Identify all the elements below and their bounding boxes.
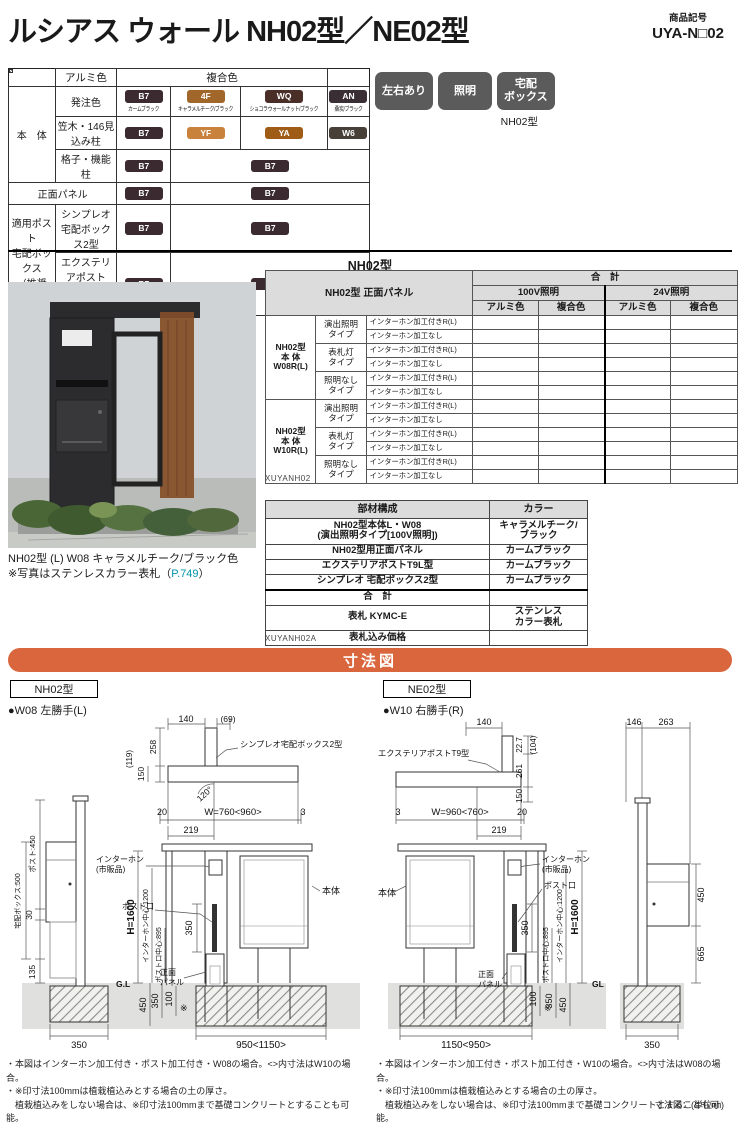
- table-row: 照明なし タイプインターホン加工付きR(L): [266, 456, 738, 470]
- part-name: 合 計: [266, 590, 490, 605]
- part-callout: ポスト口: [544, 881, 576, 890]
- price-cell: [538, 456, 604, 470]
- price-cell: [473, 400, 538, 414]
- dim-label: 350: [644, 1040, 660, 1051]
- price-cell: [605, 386, 670, 400]
- color-cell: B7: [117, 117, 171, 150]
- dim-label: G.L: [116, 979, 130, 989]
- type-label: 照明なし タイプ: [316, 456, 366, 484]
- price-cell: [538, 358, 604, 372]
- price-cell: [473, 470, 538, 484]
- color-chip: B7: [125, 127, 163, 139]
- part-name: NH02型用正面パネル: [266, 544, 490, 559]
- row-label: 格子・機能柱: [55, 150, 117, 183]
- dim-label: ※: [180, 1003, 188, 1013]
- price-cell: [605, 428, 670, 442]
- part-callout: シンプレオ宅配ボックス2型: [240, 739, 342, 749]
- dim-label: インターホン中心:1200: [141, 889, 150, 963]
- part-callout: パネル: [160, 978, 184, 987]
- table-code: XUYANH02A: [265, 634, 316, 643]
- part-callout: インターホン: [542, 855, 590, 864]
- price-cell: [670, 372, 737, 386]
- dim-label: 100: [528, 991, 538, 1006]
- model-label-ne02: NE02型: [383, 680, 471, 698]
- dim-label: 950<1150>: [236, 1040, 286, 1051]
- note-line: ・※印寸法100mmは植栽植込みとする場合の土の厚さ。: [376, 1085, 736, 1099]
- dim-label: W=760<960>: [204, 807, 262, 818]
- color-chip: B7: [125, 160, 163, 172]
- total-header: 合 計: [473, 271, 738, 286]
- part-callout: 本体: [322, 885, 340, 896]
- part-callout: パネル: [478, 980, 502, 989]
- color-cell: B7: [171, 183, 370, 205]
- color-name: 桑炭/ブラック: [332, 104, 364, 113]
- dimension-drawing-ne02: 140 エクステリアポストT9型 22.7 (104) 261 150 3 W=…: [374, 714, 740, 1056]
- dim-label: GL: [592, 979, 604, 989]
- price-cell: [605, 358, 670, 372]
- sub-label: インターホン加工なし: [366, 470, 473, 484]
- dim-label: 22.7: [515, 737, 524, 753]
- note-line: ・本図はインターホン加工付き・ポスト加工付き・W10の場合。<>内寸法はW08の…: [376, 1058, 736, 1085]
- price-cell: [605, 442, 670, 456]
- type-label: 表札灯 タイプ: [316, 344, 366, 372]
- part-callout: インターホン: [96, 855, 144, 864]
- price-cell: [670, 414, 737, 428]
- color-table-corner: [9, 69, 13, 73]
- price-cell: [473, 330, 538, 344]
- color-cell: B7カームブラック: [117, 87, 171, 117]
- dim-label: 350: [150, 993, 160, 1008]
- part-color: ステンレス カラー表札: [490, 605, 588, 631]
- column-header-fukugo: 複合色: [117, 69, 328, 87]
- table-row: 照明なし タイプインターホン加工付きR(L): [266, 372, 738, 386]
- note-line: ・本図はインターホン加工付き・ポスト加工付き・W08の場合。<>内寸法はW10の…: [6, 1058, 366, 1085]
- price-table-corner: NH02型 正面パネル: [266, 271, 473, 316]
- dimension-drawing-nh02: 140 (69) シンプレオ宅配ボックス2型 258 150 (119) 120…: [0, 714, 372, 1056]
- notes-left: ・本図はインターホン加工付き・ポスト加工付き・W08の場合。<>内寸法はW10の…: [6, 1058, 366, 1123]
- dim-label: W=960<760>: [431, 807, 489, 818]
- color-cell: AN桑炭/ブラック: [327, 87, 369, 117]
- row-label: 発注色: [55, 87, 117, 117]
- sub-label: インターホン加工なし: [366, 330, 473, 344]
- part-callout: (市販品): [542, 864, 572, 874]
- color-cell: B7: [117, 150, 171, 183]
- sub-label: インターホン加工付きR(L): [366, 316, 473, 330]
- price-table: NH02型 正面パネル 合 計 100V照明 24V照明 アルミ色 複合色 アル…: [265, 270, 738, 484]
- part-callout: 正面: [478, 970, 494, 979]
- price-cell: [538, 386, 604, 400]
- dim-label: 219: [183, 825, 198, 835]
- note-line: 植栽植込みをしない場合は、※印寸法100mmまで基礎コンクリートとすることも可能…: [6, 1099, 366, 1123]
- dim-label: 350: [71, 1040, 87, 1051]
- dim-label: 350: [520, 920, 530, 935]
- notes-right: ・本図はインターホン加工付き・ポスト加工付き・W10の場合。<>内寸法はW08の…: [376, 1058, 736, 1123]
- dim-label: 1150<950>: [441, 1040, 491, 1051]
- dim-label: 150: [136, 767, 146, 781]
- row-label: 正面パネル: [9, 183, 117, 205]
- dim-label: 20: [517, 807, 527, 817]
- dim-label: 140: [178, 714, 193, 724]
- dim-label: 665: [696, 946, 706, 961]
- dim-label: 120°: [195, 784, 215, 803]
- page-title: ルシアス ウォール NH02型／NE02型: [8, 8, 469, 50]
- dim-label: 219: [491, 825, 506, 835]
- color-chip: AN: [329, 90, 367, 102]
- color-cell: 4Fキャラメルチーク/ブラック: [171, 87, 241, 117]
- type-label: 演出照明 タイプ: [316, 400, 366, 428]
- note-line: ・※印寸法100mmは植栽植込みとする場合の土の厚さ。: [6, 1085, 366, 1099]
- part-color: [490, 631, 588, 646]
- price-cell: [473, 386, 538, 400]
- product-photo: [8, 282, 256, 548]
- parts-header-name: 部材構成: [266, 501, 490, 519]
- header-24v: 24V照明: [605, 286, 738, 301]
- table-code: XUYANH02: [265, 474, 311, 483]
- price-cell: [473, 358, 538, 372]
- price-cell: [473, 344, 538, 358]
- price-cell: [605, 414, 670, 428]
- part-callout: 本体: [378, 887, 396, 898]
- dim-label: インターホン中心:1200: [555, 889, 564, 963]
- type-label: 表札灯 タイプ: [316, 428, 366, 456]
- price-cell: [605, 316, 670, 330]
- column-header-alumi: アルミ色: [55, 69, 117, 87]
- sub-label: インターホン加工付きR(L): [366, 344, 473, 358]
- dim-label: (119): [125, 750, 134, 768]
- color-chip: B7: [251, 222, 289, 234]
- color-name: キャラメルチーク/ブラック: [178, 104, 233, 113]
- product-code-block: 商品記号 UYA-N□02: [642, 10, 734, 42]
- dim-label: 450: [696, 887, 706, 902]
- price-cell: [670, 456, 737, 470]
- part-color: カームブラック: [490, 574, 588, 589]
- price-cell: [670, 442, 737, 456]
- table-row: シンプレオ 宅配ボックス2型カームブラック: [266, 574, 588, 589]
- sub-label: インターホン加工なし: [366, 442, 473, 456]
- price-cell: [670, 400, 737, 414]
- feature-badges: 左右あり 照明 宅配 ボックス: [375, 72, 555, 110]
- product-code: UYA-N□02: [642, 25, 734, 42]
- dim-label: ポスト口中心:895: [154, 927, 163, 983]
- price-cell: [473, 428, 538, 442]
- sub-label: インターホン加工付きR(L): [366, 372, 473, 386]
- price-cell: [538, 414, 604, 428]
- header-100v: 100V照明: [473, 286, 605, 301]
- dim-label: 261: [514, 764, 524, 778]
- dim-label: 450: [558, 997, 568, 1012]
- dim-label: 146: [626, 717, 641, 727]
- price-cell: [670, 316, 737, 330]
- badge-left-right: 左右あり: [375, 72, 433, 110]
- color-cell: YA: [241, 117, 328, 150]
- dim-label: H=1600: [126, 899, 137, 935]
- price-cell: [605, 372, 670, 386]
- dim-label: 350: [544, 993, 554, 1008]
- price-cell: [538, 442, 604, 456]
- color-cell: YF: [171, 117, 241, 150]
- badge-lighting: 照明: [438, 72, 492, 110]
- price-cell: [670, 470, 737, 484]
- part-color: カームブラック: [490, 559, 588, 574]
- price-cell: [605, 344, 670, 358]
- table-row: 表札灯 タイプインターホン加工付きR(L): [266, 344, 738, 358]
- dim-label: 263: [658, 717, 673, 727]
- parts-table: 部材構成カラー NH02型本体L・W08 (演出照明タイプ[100V照明])キャ…: [265, 500, 588, 646]
- caption-suffix: ）: [199, 568, 210, 580]
- price-cell: [538, 428, 604, 442]
- price-cell: [670, 330, 737, 344]
- dim-label: 140: [476, 717, 491, 727]
- dim-label: 150: [514, 789, 524, 803]
- dim-label: 258: [148, 740, 158, 754]
- color-cell: B7: [117, 183, 171, 205]
- row-group-w10: NH02型 本 体 W10R(L): [266, 400, 316, 484]
- color-chip: B7: [125, 187, 163, 199]
- color-name: ショコラウォールナット/ブラック: [250, 104, 319, 113]
- type-label: 演出照明 タイプ: [316, 316, 366, 344]
- dim-label: ポスト:450: [28, 835, 37, 872]
- price-cell: [670, 344, 737, 358]
- table-row: 表札 KYMC-Eステンレス カラー表札: [266, 605, 588, 631]
- dim-label: 350: [184, 920, 194, 935]
- table-row: NH02型用正面パネルカームブラック: [266, 544, 588, 559]
- dim-label: 3: [395, 807, 400, 817]
- price-cell: [473, 316, 538, 330]
- badge-delivery-box: 宅配 ボックス: [497, 72, 555, 110]
- part-callout: エクステリアポストT9型: [378, 749, 469, 758]
- color-chip: B7: [251, 187, 289, 199]
- type-label: 照明なし タイプ: [316, 372, 366, 400]
- dim-label: (69): [220, 714, 235, 724]
- part-name: 表札 KYMC-E: [266, 605, 490, 631]
- photo-caption: NH02型 (L) W08 キャラメルチーク/ブラック色 ※写真はステンレスカラ…: [8, 552, 238, 582]
- part-name: エクステリアポストT9L型: [266, 559, 490, 574]
- price-cell: [473, 442, 538, 456]
- dim-label: 3: [300, 807, 305, 817]
- price-cell: [670, 358, 737, 372]
- color-chip: B7: [251, 160, 289, 172]
- dimensions-banner: 寸法図: [8, 648, 732, 672]
- caption-line1: NH02型 (L) W08 キャラメルチーク/ブラック色: [8, 552, 238, 567]
- color-cell: W6: [327, 117, 369, 150]
- dim-label: 135: [27, 965, 37, 979]
- color-chip: B7: [125, 222, 163, 234]
- dim-label: 100: [164, 991, 174, 1006]
- dim-label: 宅配ボックス:500: [13, 873, 22, 929]
- color-chip: WQ: [265, 90, 303, 102]
- price-cell: [473, 372, 538, 386]
- product-code-label: 商品記号: [642, 10, 734, 24]
- table-row: NH02型本体L・W08 (演出照明タイプ[100V照明])キャラメルチーク/ …: [266, 519, 588, 545]
- color-chip: YA: [265, 127, 303, 139]
- unit-note: 寸法図：(単位㎜): [655, 1098, 724, 1111]
- dim-label: 20: [157, 807, 167, 817]
- badge-model-label: NH02型: [375, 114, 538, 129]
- price-cell: [538, 316, 604, 330]
- price-cell: [538, 344, 604, 358]
- color-chip: W6: [329, 127, 367, 139]
- price-cell: [670, 386, 737, 400]
- sub-label: インターホン加工なし: [366, 358, 473, 372]
- price-cell: [538, 470, 604, 484]
- header-fukugo: 複合色: [538, 301, 604, 316]
- color-cell: B7: [171, 205, 370, 253]
- page-link[interactable]: P.749: [171, 568, 198, 580]
- sub-label: インターホン加工付きR(L): [366, 400, 473, 414]
- row-label: シンプレオ 宅配ボックス2型: [55, 205, 117, 253]
- part-name: NH02型本体L・W08 (演出照明タイプ[100V照明]): [266, 519, 490, 545]
- price-cell: [473, 414, 538, 428]
- price-cell: [473, 456, 538, 470]
- model-label-nh02: NH02型: [10, 680, 98, 698]
- dim-label: (104): [529, 735, 538, 754]
- price-cell: [605, 470, 670, 484]
- sub-label: インターホン加工なし: [366, 386, 473, 400]
- row-label: 笠木・146見込み柱: [55, 117, 117, 150]
- sub-label: インターホン加工なし: [366, 414, 473, 428]
- price-cell: [538, 372, 604, 386]
- price-cell: [538, 330, 604, 344]
- table-row: NH02型 本 体 W10R(L)演出照明 タイプインターホン加工付きR(L): [266, 400, 738, 414]
- parts-header-color: カラー: [490, 501, 588, 519]
- header-fukugo: 複合色: [670, 301, 737, 316]
- catalog-page: ルシアス ウォール NH02型／NE02型 商品記号 UYA-N□02 アルミ色…: [0, 0, 740, 1123]
- table-row: 合 計: [266, 590, 588, 605]
- row-group-w08: NH02型 本 体 W08R(L): [266, 316, 316, 400]
- table-row: エクステリアポストT9L型カームブラック: [266, 559, 588, 574]
- price-cell: [605, 400, 670, 414]
- part-name: シンプレオ 宅配ボックス2型: [266, 574, 490, 589]
- price-cell: [538, 400, 604, 414]
- color-chip: YF: [187, 127, 225, 139]
- row-group-body: 本 体: [9, 87, 56, 183]
- color-cell: WQショコラウォールナット/ブラック: [241, 87, 328, 117]
- caption-line2: ※写真はステンレスカラー表札（P.749）: [8, 567, 238, 582]
- color-name: カームブラック: [123, 104, 165, 113]
- part-color: [490, 590, 588, 605]
- dim-label: 450: [138, 997, 148, 1012]
- price-cell: [605, 330, 670, 344]
- part-color: キャラメルチーク/ ブラック: [490, 519, 588, 545]
- price-cell: [670, 428, 737, 442]
- header-alumi: アルミ色: [473, 301, 538, 316]
- header-alumi: アルミ色: [605, 301, 670, 316]
- color-cell: B7: [171, 150, 370, 183]
- sub-label: インターホン加工付きR(L): [366, 456, 473, 470]
- dim-label: ポスト口中心:895: [541, 927, 550, 983]
- color-cell: B7: [117, 205, 171, 253]
- caption-prefix: ※写真はステンレスカラー表札（: [8, 568, 171, 580]
- part-color: カームブラック: [490, 544, 588, 559]
- price-cell: [605, 456, 670, 470]
- color-chip: B7: [125, 90, 163, 102]
- table-row: 表札灯 タイプインターホン加工付きR(L): [266, 428, 738, 442]
- sub-label: インターホン加工付きR(L): [366, 428, 473, 442]
- dim-label: 30: [24, 910, 34, 920]
- part-callout: (市販品): [96, 864, 126, 874]
- table-row: NH02型 本 体 W08R(L)演出照明 タイプインターホン加工付きR(L): [266, 316, 738, 330]
- dim-label: H=1600: [570, 899, 581, 935]
- color-chip: 4F: [187, 90, 225, 102]
